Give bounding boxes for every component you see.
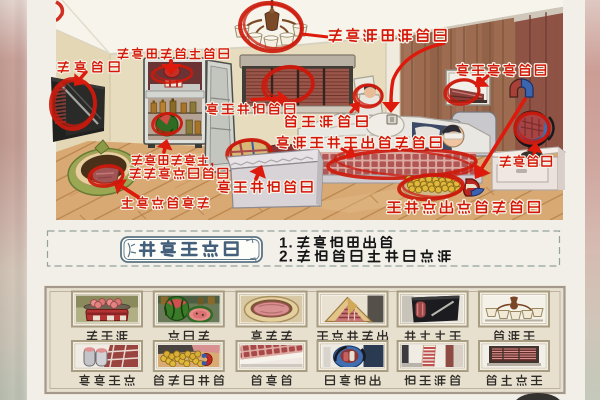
svg-text:.: . (289, 249, 293, 266)
svg-text:,: , (210, 153, 214, 168)
svg-text:2: 2 (279, 249, 288, 266)
